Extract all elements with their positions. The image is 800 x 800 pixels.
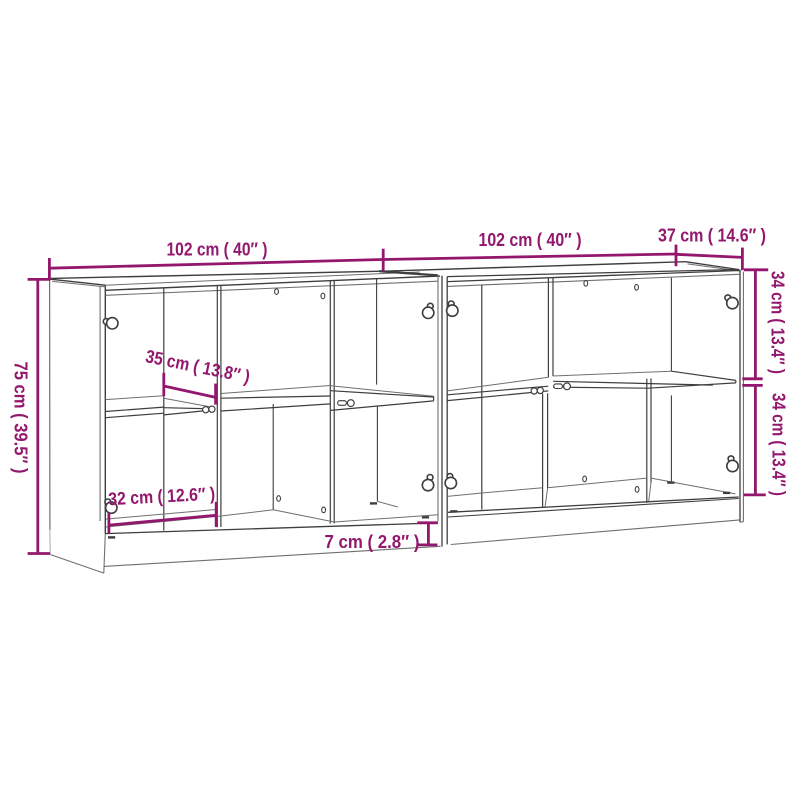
svg-text:102 cm ( 40″ ): 102 cm ( 40″ ) — [167, 239, 268, 259]
svg-text:102 cm ( 40″ ): 102 cm ( 40″ ) — [479, 230, 582, 250]
svg-text:34 cm ( 13.4″ ): 34 cm ( 13.4″ ) — [769, 393, 789, 496]
svg-text:34 cm ( 13.4″ ): 34 cm ( 13.4″ ) — [768, 271, 788, 374]
svg-text:7 cm ( 2.8″ ): 7 cm ( 2.8″ ) — [325, 532, 420, 552]
svg-text:37 cm ( 14.6″ ): 37 cm ( 14.6″ ) — [658, 225, 766, 245]
svg-text:75 cm ( 39.5″ ): 75 cm ( 39.5″ ) — [11, 362, 31, 474]
